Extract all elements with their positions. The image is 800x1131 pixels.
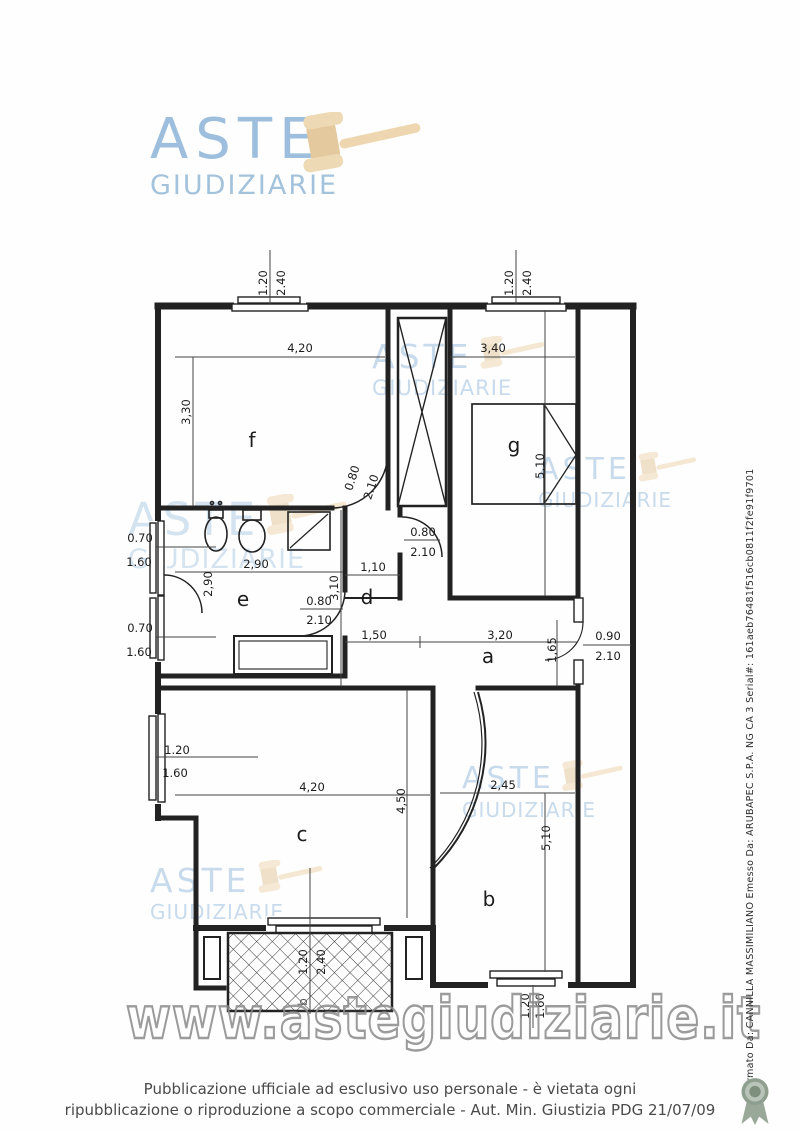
- footer-line-2: ripubblicazione o riproduzione a scopo c…: [0, 1100, 780, 1121]
- dim-bath-window-upper-w: 0.70: [127, 531, 153, 545]
- footer-disclaimer: Pubblicazione ufficiale ad esclusivo uso…: [0, 1079, 780, 1120]
- dim-door-d-h: 2.10: [410, 545, 436, 559]
- dim-top-window-left-w: 1.20: [256, 270, 270, 296]
- bed: [472, 404, 576, 504]
- aste-giudiziarie-logo: ASTE GIUDIZIARIE: [150, 112, 338, 199]
- dim-room-e-h: 2,90: [201, 571, 215, 597]
- dimension-lines: [156, 250, 631, 1028]
- dim-room-g-h: 5,10: [533, 453, 547, 479]
- room-label-f: f: [248, 428, 256, 452]
- dim-room-c-w: 4,20: [299, 780, 325, 794]
- url-watermark: www.astegiudiziarie.it: [126, 984, 761, 1052]
- dim-room-c-h: 4,50: [394, 788, 408, 814]
- dim-hall-seg-left: 1,50: [361, 628, 387, 642]
- door-arcs: [164, 452, 583, 868]
- dim-top-window-left-h: 2.40: [274, 270, 288, 296]
- dim-balcony-door-w: 1.20: [296, 949, 310, 975]
- room-label-a: a: [482, 644, 494, 668]
- dim-room-b-w: 2,45: [490, 778, 516, 792]
- dim-room-g-w: 3,40: [480, 341, 506, 355]
- dim-hall-seg-right: 3,20: [487, 628, 513, 642]
- bathtub: [234, 636, 332, 674]
- dim-room-d-w: 1,10: [360, 560, 386, 574]
- seal-rosette-icon: [733, 1076, 777, 1126]
- dim-door-f-h: 2.10: [360, 473, 381, 502]
- dim-top-window-right-w: 1.20: [502, 270, 516, 296]
- dim-door-d-w: 0.80: [410, 525, 436, 539]
- dim-room-c-window-h: 1.60: [162, 766, 188, 780]
- dim-top-window-right-h: 2.40: [520, 270, 534, 296]
- dim-bath-window-lower-h: 1.60: [126, 645, 152, 659]
- dim-bath-window-upper-h: 1.60: [126, 555, 152, 569]
- dim-room-b-h: 5,10: [539, 825, 553, 851]
- dim-entry-door-h: 2.10: [595, 649, 621, 663]
- walls: [158, 306, 633, 988]
- room-label-d: d: [361, 585, 374, 609]
- footer-line-1: Pubblicazione ufficiale ad esclusivo uso…: [0, 1079, 780, 1100]
- room-label-c: c: [297, 822, 308, 846]
- dim-room-e-w: 2,90: [243, 557, 269, 571]
- dim-room-f-w: 4,20: [287, 341, 313, 355]
- scanned-floorplan-page: ASTE GIUDIZIARIE ASTE GIUDIZIARIE ASTE G…: [0, 0, 800, 1131]
- dim-balcony-door-h: 2.40: [314, 949, 328, 975]
- dim-door-e-w: 0.80: [306, 594, 332, 608]
- room-label-e: e: [237, 587, 249, 611]
- dim-bath-window-lower-w: 0.70: [127, 621, 153, 635]
- bidet: [205, 517, 227, 551]
- gavel-icon: [298, 112, 424, 186]
- room-label-b: b: [483, 887, 496, 911]
- room-label-g: g: [508, 433, 521, 457]
- dim-room-c-window-w: 1.20: [164, 743, 190, 757]
- dimension-labels: 1.20 2.40 1.20 2.40 4,20 3,30 3,40 5,10 …: [126, 270, 621, 1019]
- closet: [398, 318, 446, 506]
- toilet: [239, 520, 265, 552]
- dim-entry-door-w: 0.90: [595, 629, 621, 643]
- bathroom-fixtures: [205, 502, 332, 675]
- dim-hall-depth: 1,65: [545, 637, 559, 663]
- dim-door-e-h: 2.10: [306, 613, 332, 627]
- digital-signature-text: Firmato Da: CANNILLA MASSIMILIANO Emesso…: [745, 538, 756, 1090]
- dim-room-f-h: 3,30: [179, 399, 193, 425]
- toilet-tank: [243, 510, 261, 520]
- dim-door-f-w: 0.80: [341, 464, 362, 493]
